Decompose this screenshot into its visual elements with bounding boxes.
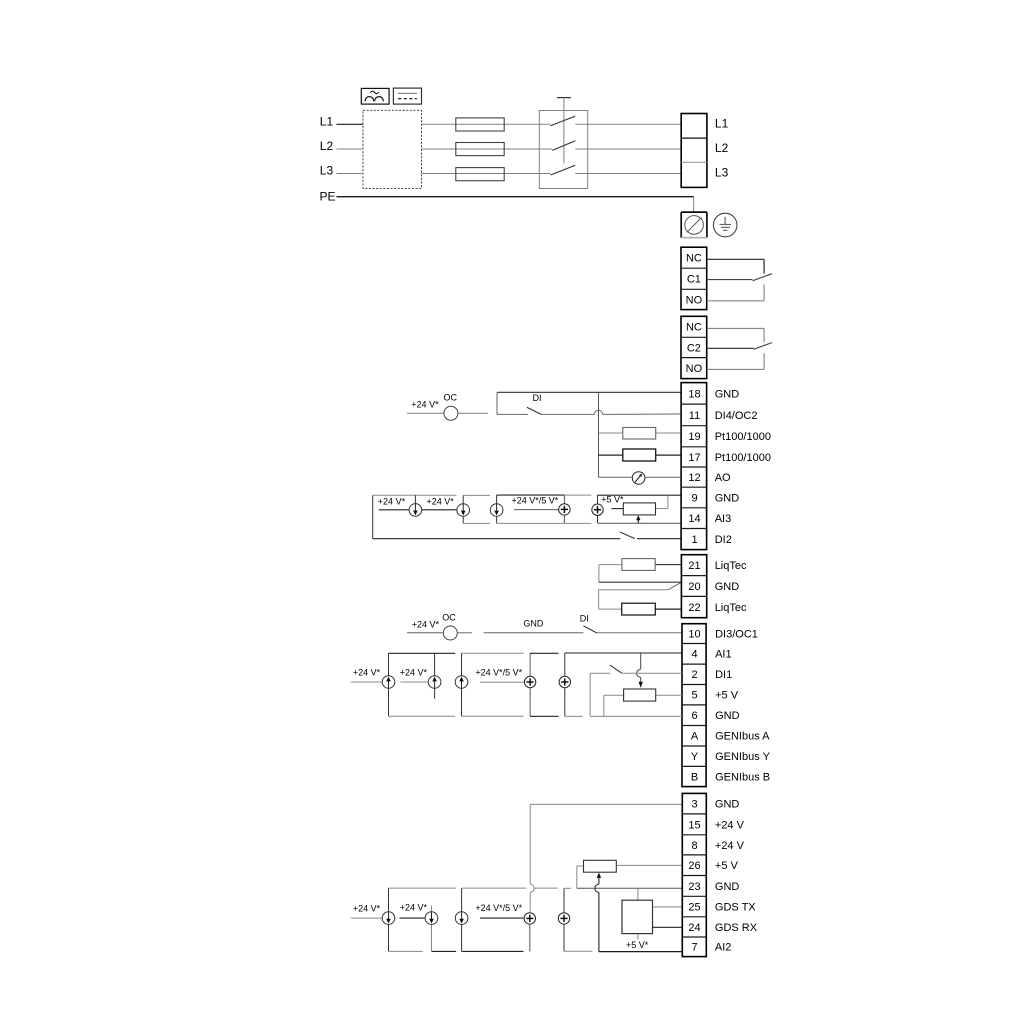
svg-text:LiqTec: LiqTec (715, 560, 747, 572)
svg-text:DI4/OC2: DI4/OC2 (715, 410, 758, 422)
svg-text:+24 V*/5 V*: +24 V*/5 V* (512, 495, 559, 505)
svg-text:L2: L2 (320, 139, 334, 153)
svg-text:+5 V*: +5 V* (601, 495, 624, 505)
svg-text:Y: Y (691, 751, 699, 763)
svg-text:GND: GND (715, 881, 740, 893)
svg-text:7: 7 (691, 942, 697, 954)
svg-text:+24 V*: +24 V* (378, 496, 406, 506)
svg-text:B: B (691, 771, 698, 783)
svg-text:Pt100/1000: Pt100/1000 (715, 431, 771, 443)
svg-text:26: 26 (688, 860, 700, 872)
svg-text:+24 V*: +24 V* (412, 620, 440, 630)
svg-text:GDS RX: GDS RX (715, 922, 758, 934)
svg-text:GND: GND (715, 710, 740, 722)
svg-text:L3: L3 (715, 165, 729, 179)
svg-text:DI: DI (580, 614, 589, 624)
svg-text:18: 18 (688, 388, 700, 400)
svg-text:19: 19 (688, 431, 700, 443)
svg-text:12: 12 (688, 472, 700, 484)
svg-text:+24 V*: +24 V* (427, 496, 455, 506)
svg-text:AI3: AI3 (715, 513, 732, 525)
svg-text:LiqTec: LiqTec (715, 602, 747, 614)
svg-text:14: 14 (688, 513, 700, 525)
svg-text:NC: NC (686, 253, 702, 265)
svg-text:C2: C2 (687, 342, 701, 354)
svg-text:5: 5 (691, 690, 697, 702)
svg-text:24: 24 (688, 922, 700, 934)
svg-text:NC: NC (686, 322, 702, 334)
svg-text:21: 21 (688, 560, 700, 572)
svg-text:GND: GND (715, 799, 740, 811)
svg-text:GDS TX: GDS TX (715, 901, 756, 913)
svg-text:GND: GND (715, 388, 740, 400)
svg-text:+5 V: +5 V (715, 690, 739, 702)
svg-text:+24 V*: +24 V* (411, 400, 439, 410)
svg-text:+24 V*: +24 V* (353, 904, 381, 914)
svg-text:+24 V*/5 V*: +24 V*/5 V* (475, 668, 522, 678)
svg-text:17: 17 (688, 452, 700, 464)
svg-text:OC: OC (444, 392, 458, 402)
svg-text:L1: L1 (320, 115, 334, 129)
svg-text:+24 V*/5 V*: +24 V*/5 V* (475, 903, 522, 913)
svg-text:DI: DI (533, 393, 542, 403)
svg-text:GND: GND (715, 581, 740, 593)
svg-text:10: 10 (688, 629, 700, 641)
svg-text:DI1: DI1 (715, 669, 732, 681)
svg-text:GND: GND (715, 492, 740, 504)
svg-text:25: 25 (688, 901, 700, 913)
svg-text:AI2: AI2 (715, 942, 732, 954)
svg-text:C1: C1 (687, 274, 701, 286)
svg-text:GENIbus A: GENIbus A (715, 731, 770, 743)
svg-text:PE: PE (320, 189, 336, 203)
svg-text:AO: AO (715, 472, 731, 484)
svg-text:OC: OC (442, 613, 456, 623)
svg-text:2: 2 (691, 669, 697, 681)
svg-text:15: 15 (688, 819, 700, 831)
svg-text:3: 3 (691, 799, 697, 811)
svg-text:L3: L3 (320, 164, 334, 178)
svg-text:6: 6 (691, 710, 697, 722)
svg-text:+24 V*: +24 V* (353, 668, 381, 678)
svg-text:Pt100/1000: Pt100/1000 (715, 452, 771, 464)
svg-text:22: 22 (688, 602, 700, 614)
svg-text:23: 23 (688, 881, 700, 893)
svg-text:+24 V: +24 V (715, 840, 745, 852)
svg-text:+24 V*: +24 V* (400, 903, 428, 913)
svg-text:NO: NO (686, 294, 703, 306)
svg-text:GND: GND (523, 619, 544, 629)
svg-text:A: A (691, 731, 699, 743)
svg-text:+5 V*: +5 V* (626, 940, 649, 950)
svg-text:9: 9 (691, 492, 697, 504)
svg-text:DI2: DI2 (715, 534, 732, 546)
svg-text:4: 4 (691, 649, 697, 661)
svg-text:DI3/OC1: DI3/OC1 (715, 629, 758, 641)
svg-text:+5 V: +5 V (715, 860, 739, 872)
svg-text:1: 1 (691, 534, 697, 546)
svg-text:L1: L1 (715, 117, 729, 131)
svg-text:+24 V*: +24 V* (400, 668, 428, 678)
svg-text:8: 8 (691, 840, 697, 852)
svg-text:L2: L2 (715, 141, 729, 155)
svg-text:NO: NO (686, 363, 703, 375)
svg-text:20: 20 (688, 581, 700, 593)
svg-text:GENIbus Y: GENIbus Y (715, 751, 770, 763)
svg-text:GENIbus B: GENIbus B (715, 771, 770, 783)
svg-text:AI1: AI1 (715, 649, 732, 661)
svg-text:11: 11 (689, 410, 700, 422)
svg-text:+24 V: +24 V (715, 819, 745, 831)
